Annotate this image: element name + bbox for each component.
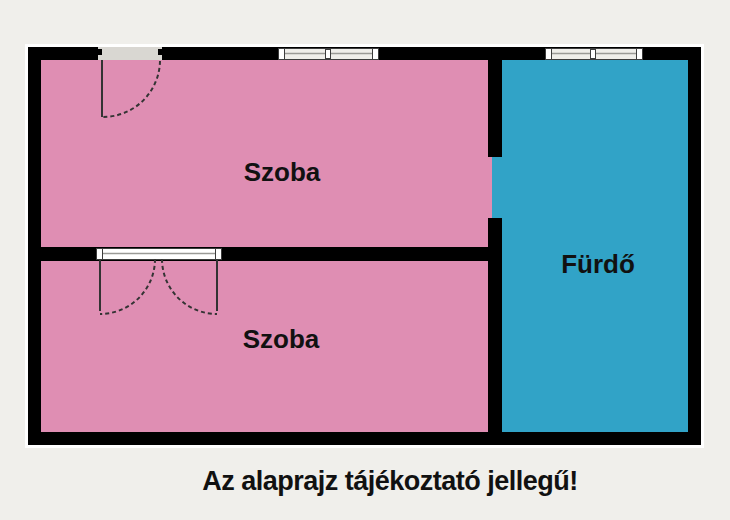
floorplan-image: Szoba Szoba Fürdő Az alaprajz tájékoztat… (0, 0, 730, 520)
room-furdo-floor (502, 60, 688, 432)
wall-vertical-divider (488, 60, 502, 432)
floorplan-canvas: Szoba Szoba Fürdő Az alaprajz tájékoztat… (0, 0, 730, 520)
entrance-jamb-left (98, 49, 102, 55)
room-label-furdo: Fürdő (561, 249, 635, 279)
window-furdo-icon (545, 48, 642, 59)
passage-opening-left (488, 157, 492, 218)
window-tick-center (325, 49, 330, 58)
entrance-opening (98, 47, 162, 60)
window-tick-left (545, 48, 551, 59)
window-tick-left (278, 48, 284, 59)
disclaimer-caption: Az alaprajz tájékoztató jellegű! (202, 466, 578, 496)
window-szoba-top-icon (278, 48, 378, 59)
door-frame-tick-left (96, 248, 102, 259)
window-tick-right (372, 48, 378, 59)
window-tick-right (636, 48, 642, 59)
door-frame-tick-right (215, 248, 221, 259)
room-szoba-top-floor (41, 60, 488, 247)
room-label-szoba-top: Szoba (244, 157, 321, 187)
passage-opening-right (492, 157, 502, 218)
room-label-szoba-bottom: Szoba (243, 324, 320, 354)
window-tick-center (590, 49, 595, 58)
entrance-jamb-right (158, 49, 162, 55)
